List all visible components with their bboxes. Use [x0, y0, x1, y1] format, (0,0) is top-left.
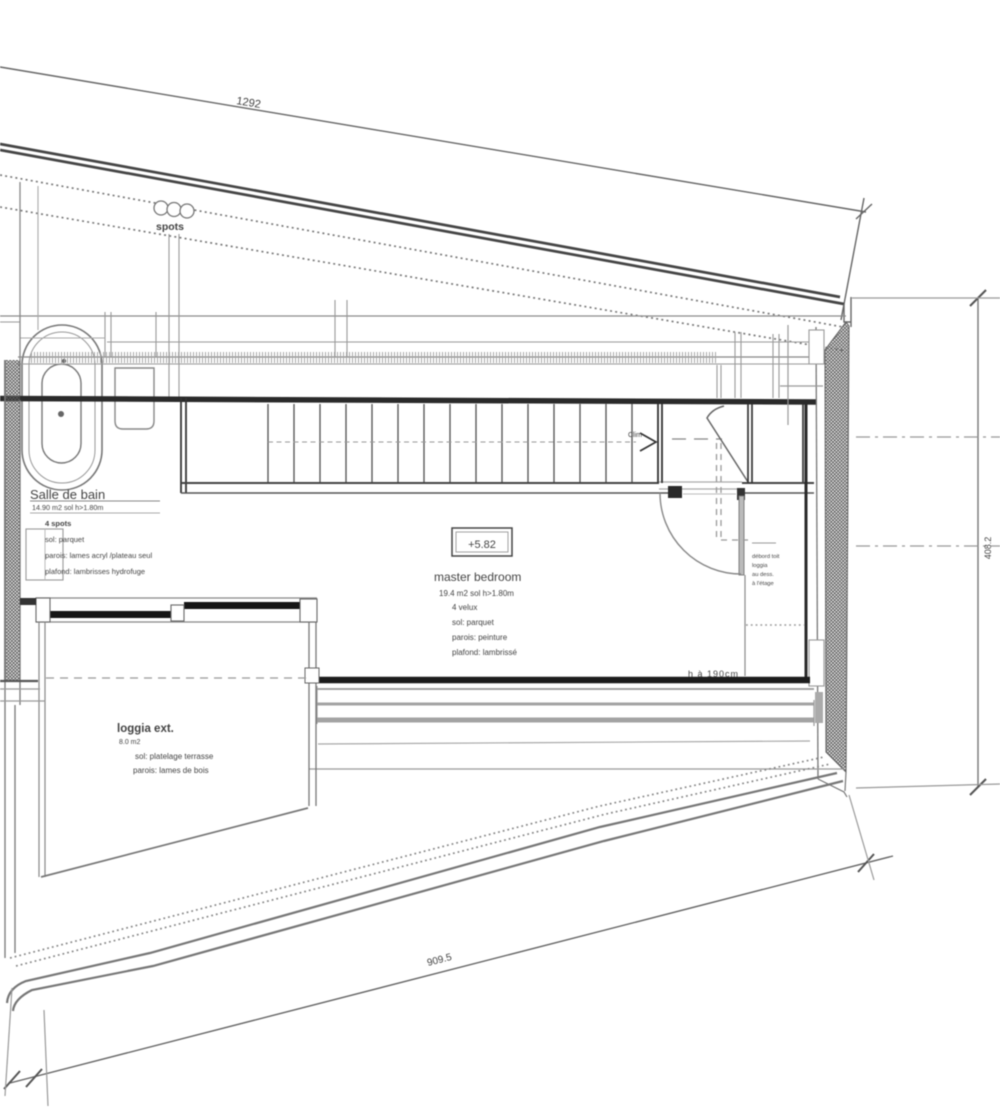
svg-text:loggia: loggia: [752, 563, 768, 569]
svg-text:au dess.: au dess.: [752, 572, 774, 578]
svg-text:4 spots: 4 spots: [45, 519, 71, 528]
svg-text:plafond: lambrissé: plafond: lambrissé: [452, 648, 517, 657]
svg-text:Clim: Clim: [628, 432, 642, 439]
svg-text:parois: peinture: parois: peinture: [452, 633, 508, 642]
svg-text:sol: parquet: sol: parquet: [45, 535, 85, 544]
svg-text:spots: spots: [156, 221, 184, 233]
svg-text:parois: lames de bois: parois: lames de bois: [133, 766, 209, 775]
svg-text:loggia ext.: loggia ext.: [117, 723, 174, 735]
svg-text:408.2: 408.2: [983, 537, 993, 560]
svg-text:plafond: lambrisses hydrofuge: plafond: lambrisses hydrofuge: [45, 567, 145, 576]
svg-text:19.4 m2 sol h>1.80m: 19.4 m2 sol h>1.80m: [439, 589, 514, 598]
svg-text:Salle de bain: Salle de bain: [30, 487, 105, 502]
svg-text:à l'étage: à l'étage: [752, 581, 774, 587]
svg-text:h à 190cm: h à 190cm: [688, 669, 739, 679]
svg-text:parois: lames acryl /plateau s: parois: lames acryl /plateau seul: [45, 551, 152, 560]
svg-text:14.90 m2 sol h>1.80m: 14.90 m2 sol h>1.80m: [32, 503, 103, 512]
svg-text:sol: parquet: sol: parquet: [452, 618, 495, 627]
svg-text:master bedroom: master bedroom: [434, 570, 521, 584]
svg-text:8.0 m2: 8.0 m2: [119, 739, 141, 746]
svg-text:sol: platelage terrasse: sol: platelage terrasse: [135, 752, 214, 761]
svg-text:+5.82: +5.82: [468, 539, 496, 551]
svg-text:4 velux: 4 velux: [452, 603, 477, 612]
svg-text:débord toit: débord toit: [752, 554, 780, 560]
